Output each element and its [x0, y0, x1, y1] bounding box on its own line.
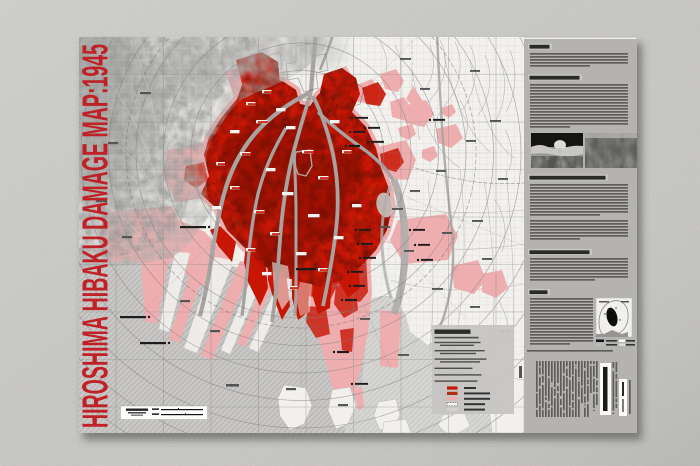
svg-text:HIROSHIMA HIBAKU DAMAGE MAP:19: HIROSHIMA HIBAKU DAMAGE MAP:1945	[75, 44, 116, 428]
